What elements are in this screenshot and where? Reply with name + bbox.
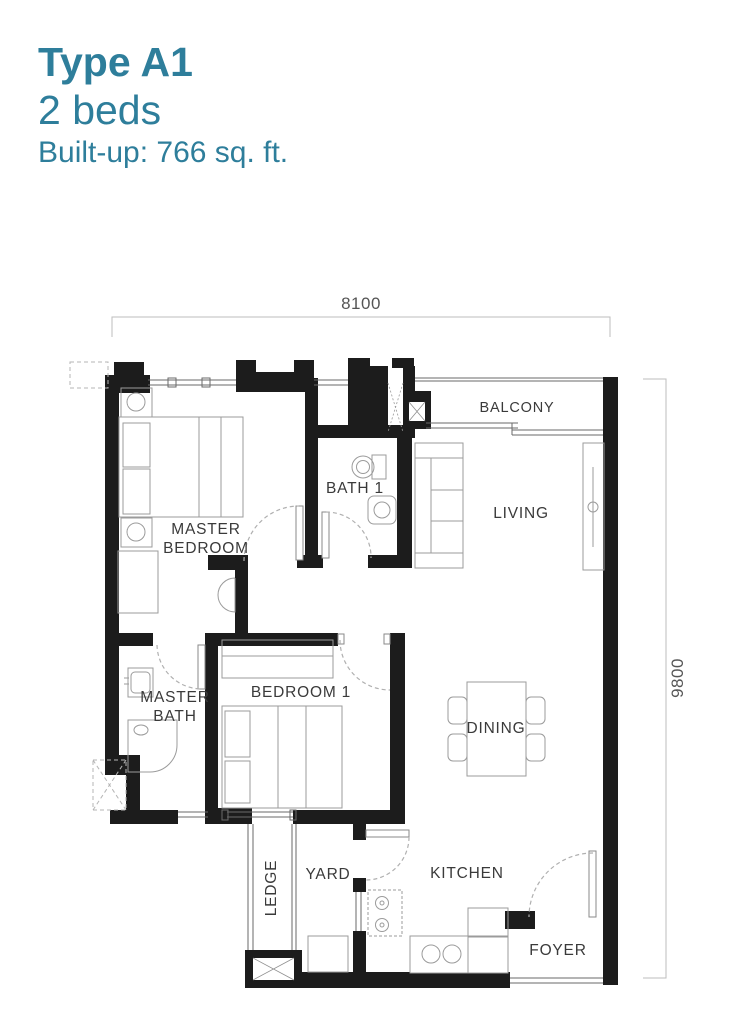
room-label-master-bath-2: BATH [153, 708, 196, 725]
room-label-living: LIVING [493, 505, 549, 522]
chair [448, 734, 467, 761]
burner-icon [376, 919, 389, 932]
stool [218, 578, 235, 612]
dimension-width-value: 8100 [341, 294, 381, 313]
dimension-right: 9800 [643, 379, 687, 978]
room-label-bedroom1: BEDROOM 1 [251, 684, 351, 701]
washer [308, 936, 348, 972]
room-label-ledge: LEDGE [263, 860, 280, 917]
room-label-balcony: BALCONY [480, 400, 555, 416]
master-bedroom-door-leaf [296, 506, 303, 560]
room-label-bath1: BATH 1 [326, 480, 384, 497]
dresser [118, 551, 158, 613]
room-label-dining: DINING [466, 720, 525, 737]
chair [448, 697, 467, 724]
entry-door-leaf [589, 851, 596, 917]
chair [526, 697, 545, 724]
room-label-master-bedroom-2: BEDROOM [163, 540, 249, 557]
lamp-icon [127, 393, 145, 411]
pillow [123, 469, 150, 514]
room-label-kitchen: KITCHEN [430, 865, 504, 882]
dimension-top: 8100 [112, 294, 610, 337]
room-label-master-bath-1: MASTER [140, 689, 209, 706]
chair [526, 734, 545, 761]
dimension-height-value: 9800 [668, 658, 687, 698]
pillow [123, 423, 150, 467]
floor-plan-svg: 8100 9800 [0, 0, 747, 1024]
furniture-bedroom1 [222, 640, 342, 808]
room-label-foyer: FOYER [529, 942, 586, 959]
basin [368, 496, 396, 524]
pillow [225, 711, 250, 757]
bath1-door-leaf [322, 512, 329, 558]
sofa [415, 443, 463, 568]
lamp-icon [127, 523, 145, 541]
furniture-master-bedroom [118, 388, 243, 613]
pillow [225, 761, 250, 803]
furniture-kitchen-yard [308, 890, 508, 973]
master-bath-door-leaf [198, 645, 205, 689]
room-label-master-bedroom-1: MASTER [171, 521, 240, 538]
room-label-yard: YARD [305, 866, 350, 883]
kitchen-door-leaf [366, 830, 409, 837]
fridge-space [468, 908, 508, 937]
kitchen-counter [410, 936, 508, 973]
burner-icon [376, 897, 389, 910]
